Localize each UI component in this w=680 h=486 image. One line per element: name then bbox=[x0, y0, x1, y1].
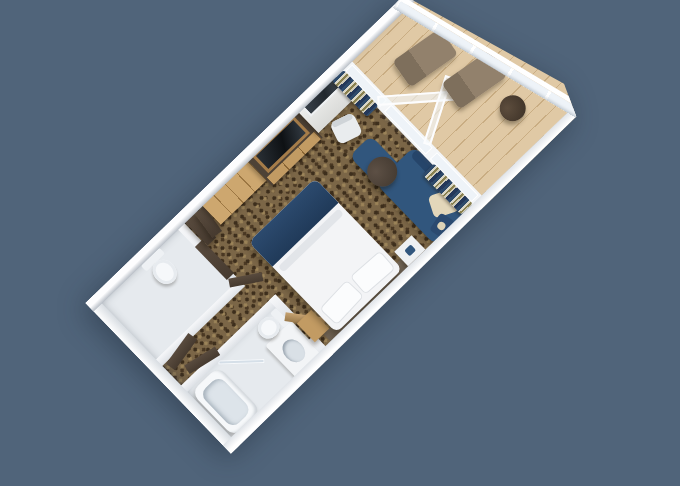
sink-basin bbox=[278, 335, 310, 367]
side-table-decor bbox=[404, 244, 416, 256]
stateroom-render bbox=[0, 0, 680, 486]
stateroom-outline bbox=[85, 0, 603, 458]
room-drop-shadow bbox=[0, 0, 680, 486]
